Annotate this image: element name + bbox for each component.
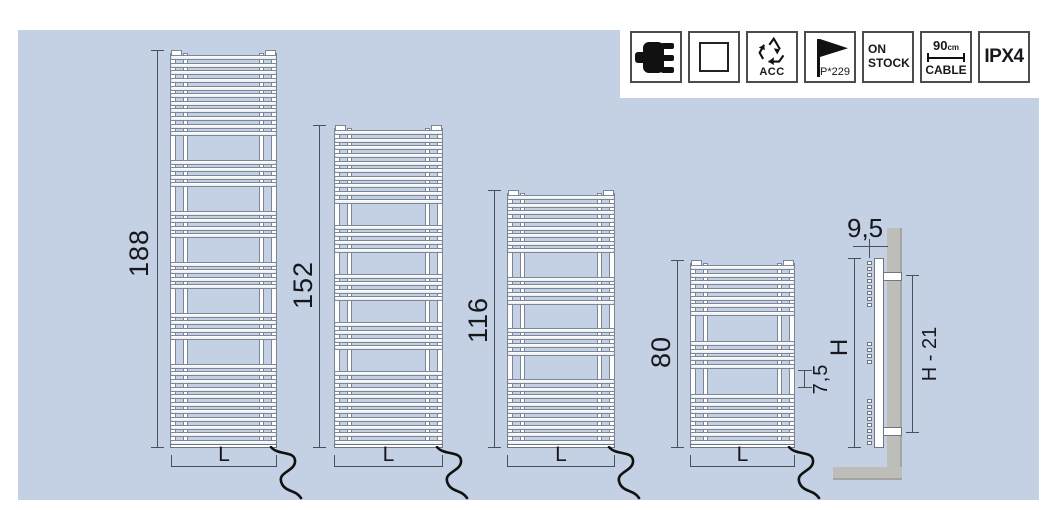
radiator-tube xyxy=(170,394,277,399)
power-cord-3 xyxy=(604,446,650,500)
radiator-188-front-view xyxy=(170,50,277,448)
radiator-tube xyxy=(334,394,443,399)
radiator-tube xyxy=(690,356,795,361)
radiator-tube xyxy=(334,176,443,181)
radiator-tube xyxy=(334,330,443,335)
radiator-tube xyxy=(170,218,277,223)
wall-floor xyxy=(833,467,902,480)
depth-dimension-line xyxy=(853,246,888,247)
radiator-tube xyxy=(334,138,443,143)
radiator-tube xyxy=(170,262,277,267)
flag-label: P*229 xyxy=(820,67,850,78)
tube-end-square xyxy=(867,291,872,295)
radiator-tube xyxy=(690,265,795,270)
radiator-tube xyxy=(170,101,277,106)
tube-end-square xyxy=(867,411,872,415)
stock-line2: STOCK xyxy=(868,57,908,71)
radiator-tube xyxy=(507,292,615,297)
tube-end-square xyxy=(867,303,872,307)
radiator-tube xyxy=(170,167,277,172)
radiator-tube xyxy=(334,281,443,286)
tube-end-square xyxy=(867,354,872,358)
radiator-tube xyxy=(507,218,615,223)
radiator-tube xyxy=(170,269,277,274)
tube-end-square xyxy=(867,423,872,427)
radiator-tube xyxy=(690,303,795,308)
radiator-tube xyxy=(334,248,443,253)
tube-end-square xyxy=(867,342,872,346)
radiator-tube xyxy=(334,289,443,294)
radiator-tube xyxy=(334,161,443,166)
radiator-tube xyxy=(170,78,277,83)
radiator-tube xyxy=(507,195,615,200)
ipx4-label: IPX4 xyxy=(984,46,1023,68)
radiator-tube xyxy=(170,86,277,91)
tube-end-square xyxy=(867,417,872,421)
ipx4-rating-icon: IPX4 xyxy=(978,31,1030,83)
radiator-tube xyxy=(334,183,443,188)
radiator-tube xyxy=(507,379,615,384)
radiator-tube xyxy=(690,288,795,293)
radiator-152-front-view xyxy=(334,125,443,448)
radiator-tube xyxy=(507,277,615,282)
radiator-tube xyxy=(170,402,277,407)
radiator-tube xyxy=(507,409,615,414)
radiator-tube xyxy=(334,168,443,173)
power-cord-4 xyxy=(784,446,830,500)
cable-value: 90 xyxy=(933,38,947,53)
mounting-bracket-top xyxy=(882,272,902,281)
bracket-span-label: H - 21 xyxy=(916,309,944,399)
depth-label: 9,5 xyxy=(847,213,883,244)
diagram-canvas: ACC P*229 ON STOCK 90cm CABLE IPX4 xyxy=(0,0,1052,510)
width-label-2: L xyxy=(334,443,443,467)
flag-p229-icon: P*229 xyxy=(804,31,856,83)
radiator-tube xyxy=(690,311,795,316)
radiator-tube xyxy=(334,191,443,196)
radiator-tube xyxy=(170,93,277,98)
radiator-tube xyxy=(690,273,795,278)
radiator-tube xyxy=(334,402,443,407)
radiator-tube xyxy=(507,233,615,238)
radiator-tube xyxy=(170,160,277,165)
cable-length-icon: 90cm CABLE xyxy=(920,31,972,83)
radiator-tube xyxy=(334,153,443,158)
height-label-80: 80 xyxy=(647,307,675,397)
tube-end-square xyxy=(867,273,872,277)
radiator-tube xyxy=(170,131,277,136)
radiator-tube xyxy=(507,402,615,407)
certification-icon-strip: ACC P*229 ON STOCK 90cm CABLE IPX4 xyxy=(630,31,1030,83)
radiator-tube xyxy=(507,203,615,208)
height-label-116: 116 xyxy=(464,275,492,365)
radiator-tube xyxy=(170,387,277,392)
radiator-tube xyxy=(170,63,277,68)
radiator-tube xyxy=(170,425,277,430)
tube-end-square xyxy=(867,399,872,403)
radiator-tube xyxy=(507,226,615,231)
radiator-tube xyxy=(690,341,795,346)
recycle-triangle-icon xyxy=(752,36,792,66)
radiator-tube xyxy=(170,409,277,414)
height-h-label: H xyxy=(826,302,854,392)
tube-end-square xyxy=(867,441,872,445)
depth-dimension-tick xyxy=(869,239,870,258)
radiator-tube xyxy=(170,432,277,437)
radiator-tube xyxy=(334,371,443,376)
acc-label: ACC xyxy=(759,67,784,78)
radiator-tube xyxy=(690,409,795,414)
radiator-tube xyxy=(507,343,615,348)
radiator-tube xyxy=(334,240,443,245)
radiator-tube xyxy=(334,274,443,279)
radiator-tube xyxy=(334,338,443,343)
cable-unit: cm xyxy=(947,43,959,52)
radiator-tube xyxy=(334,345,443,350)
radiator-tube xyxy=(170,55,277,60)
tube-end-square xyxy=(867,348,872,352)
radiator-tube xyxy=(507,335,615,340)
radiator-tube xyxy=(690,425,795,430)
radiator-tube xyxy=(170,233,277,238)
radiator-tube xyxy=(334,432,443,437)
radiator-tube xyxy=(170,364,277,369)
power-cord-1 xyxy=(266,446,312,500)
radiator-tube xyxy=(690,296,795,301)
radiator-tube xyxy=(690,280,795,285)
width-label-4: L xyxy=(690,443,795,467)
radiator-tube xyxy=(507,394,615,399)
tube-end-square xyxy=(867,261,872,265)
radiator-tube xyxy=(170,124,277,129)
flag-pennant xyxy=(820,39,848,61)
radiator-tube xyxy=(690,417,795,422)
radiator-tube xyxy=(690,364,795,369)
radiator-tube xyxy=(690,432,795,437)
radiator-tube xyxy=(334,409,443,414)
radiator-tube xyxy=(507,328,615,333)
radiator-tube xyxy=(334,379,443,384)
radiator-tube xyxy=(507,210,615,215)
recycle-acc-icon: ACC xyxy=(746,31,798,83)
tube-end-square xyxy=(867,285,872,289)
radiator-tube xyxy=(334,199,443,204)
radiator-tube xyxy=(170,417,277,422)
radiator-tube xyxy=(334,417,443,422)
radiator-tube xyxy=(170,70,277,75)
square-section-icon xyxy=(688,31,740,83)
radiator-tube xyxy=(334,225,443,230)
radiator-side-tube-ends xyxy=(867,260,875,446)
radiator-tube xyxy=(334,296,443,301)
tube-end-square xyxy=(867,405,872,409)
radiator-tube xyxy=(170,371,277,376)
radiator-tube xyxy=(334,322,443,327)
cable-label: CABLE xyxy=(925,64,966,76)
tube-end-square xyxy=(867,279,872,283)
radiator-tube xyxy=(690,349,795,354)
radiator-tube xyxy=(507,417,615,422)
radiator-tube xyxy=(334,425,443,430)
radiator-tube xyxy=(170,116,277,121)
radiator-tube xyxy=(690,402,795,407)
radiator-116-front-view xyxy=(507,190,615,448)
radiator-tube xyxy=(507,432,615,437)
mounting-bracket-bottom xyxy=(882,427,902,436)
width-label-1: L xyxy=(171,443,277,467)
radiator-tube xyxy=(170,277,277,282)
radiator-tube xyxy=(334,387,443,392)
radiator-tube xyxy=(507,248,615,253)
height-label-152: 152 xyxy=(289,240,317,330)
radiator-tube xyxy=(170,211,277,216)
radiator-tube xyxy=(170,284,277,289)
radiator-tube xyxy=(170,379,277,384)
radiator-tube xyxy=(170,175,277,180)
radiator-tube xyxy=(170,328,277,333)
radiator-tube xyxy=(507,387,615,392)
tube-end-square xyxy=(867,360,872,364)
radiator-tube xyxy=(170,313,277,318)
radiator-80-front-view xyxy=(690,260,795,448)
radiator-tube xyxy=(334,130,443,135)
width-label-3: L xyxy=(507,443,615,467)
radiator-tube xyxy=(507,300,615,305)
stock-line1: ON xyxy=(868,43,908,57)
square-glyph xyxy=(699,42,729,72)
on-stock-icon: ON STOCK xyxy=(862,31,914,83)
radiator-tube xyxy=(690,394,795,399)
wall-vertical xyxy=(887,228,902,480)
radiator-tube xyxy=(170,108,277,113)
radiator-side-profile xyxy=(874,258,884,448)
radiator-tube xyxy=(507,425,615,430)
radiator-tube xyxy=(170,335,277,340)
radiator-tube xyxy=(170,226,277,231)
electric-plug-icon xyxy=(630,31,682,83)
radiator-tube xyxy=(507,351,615,356)
tube-end-square xyxy=(867,429,872,433)
radiator-tube xyxy=(170,320,277,325)
radiator-tube xyxy=(507,284,615,289)
radiator-tube xyxy=(170,182,277,187)
radiator-tube xyxy=(334,232,443,237)
radiator-tube xyxy=(334,145,443,150)
tube-end-square xyxy=(867,267,872,271)
radiator-tube xyxy=(507,241,615,246)
tube-end-square xyxy=(867,297,872,301)
cable-dimension-line xyxy=(927,53,965,62)
power-cord-2 xyxy=(432,446,478,500)
tube-end-square xyxy=(867,435,872,439)
height-label-188: 188 xyxy=(125,208,153,298)
